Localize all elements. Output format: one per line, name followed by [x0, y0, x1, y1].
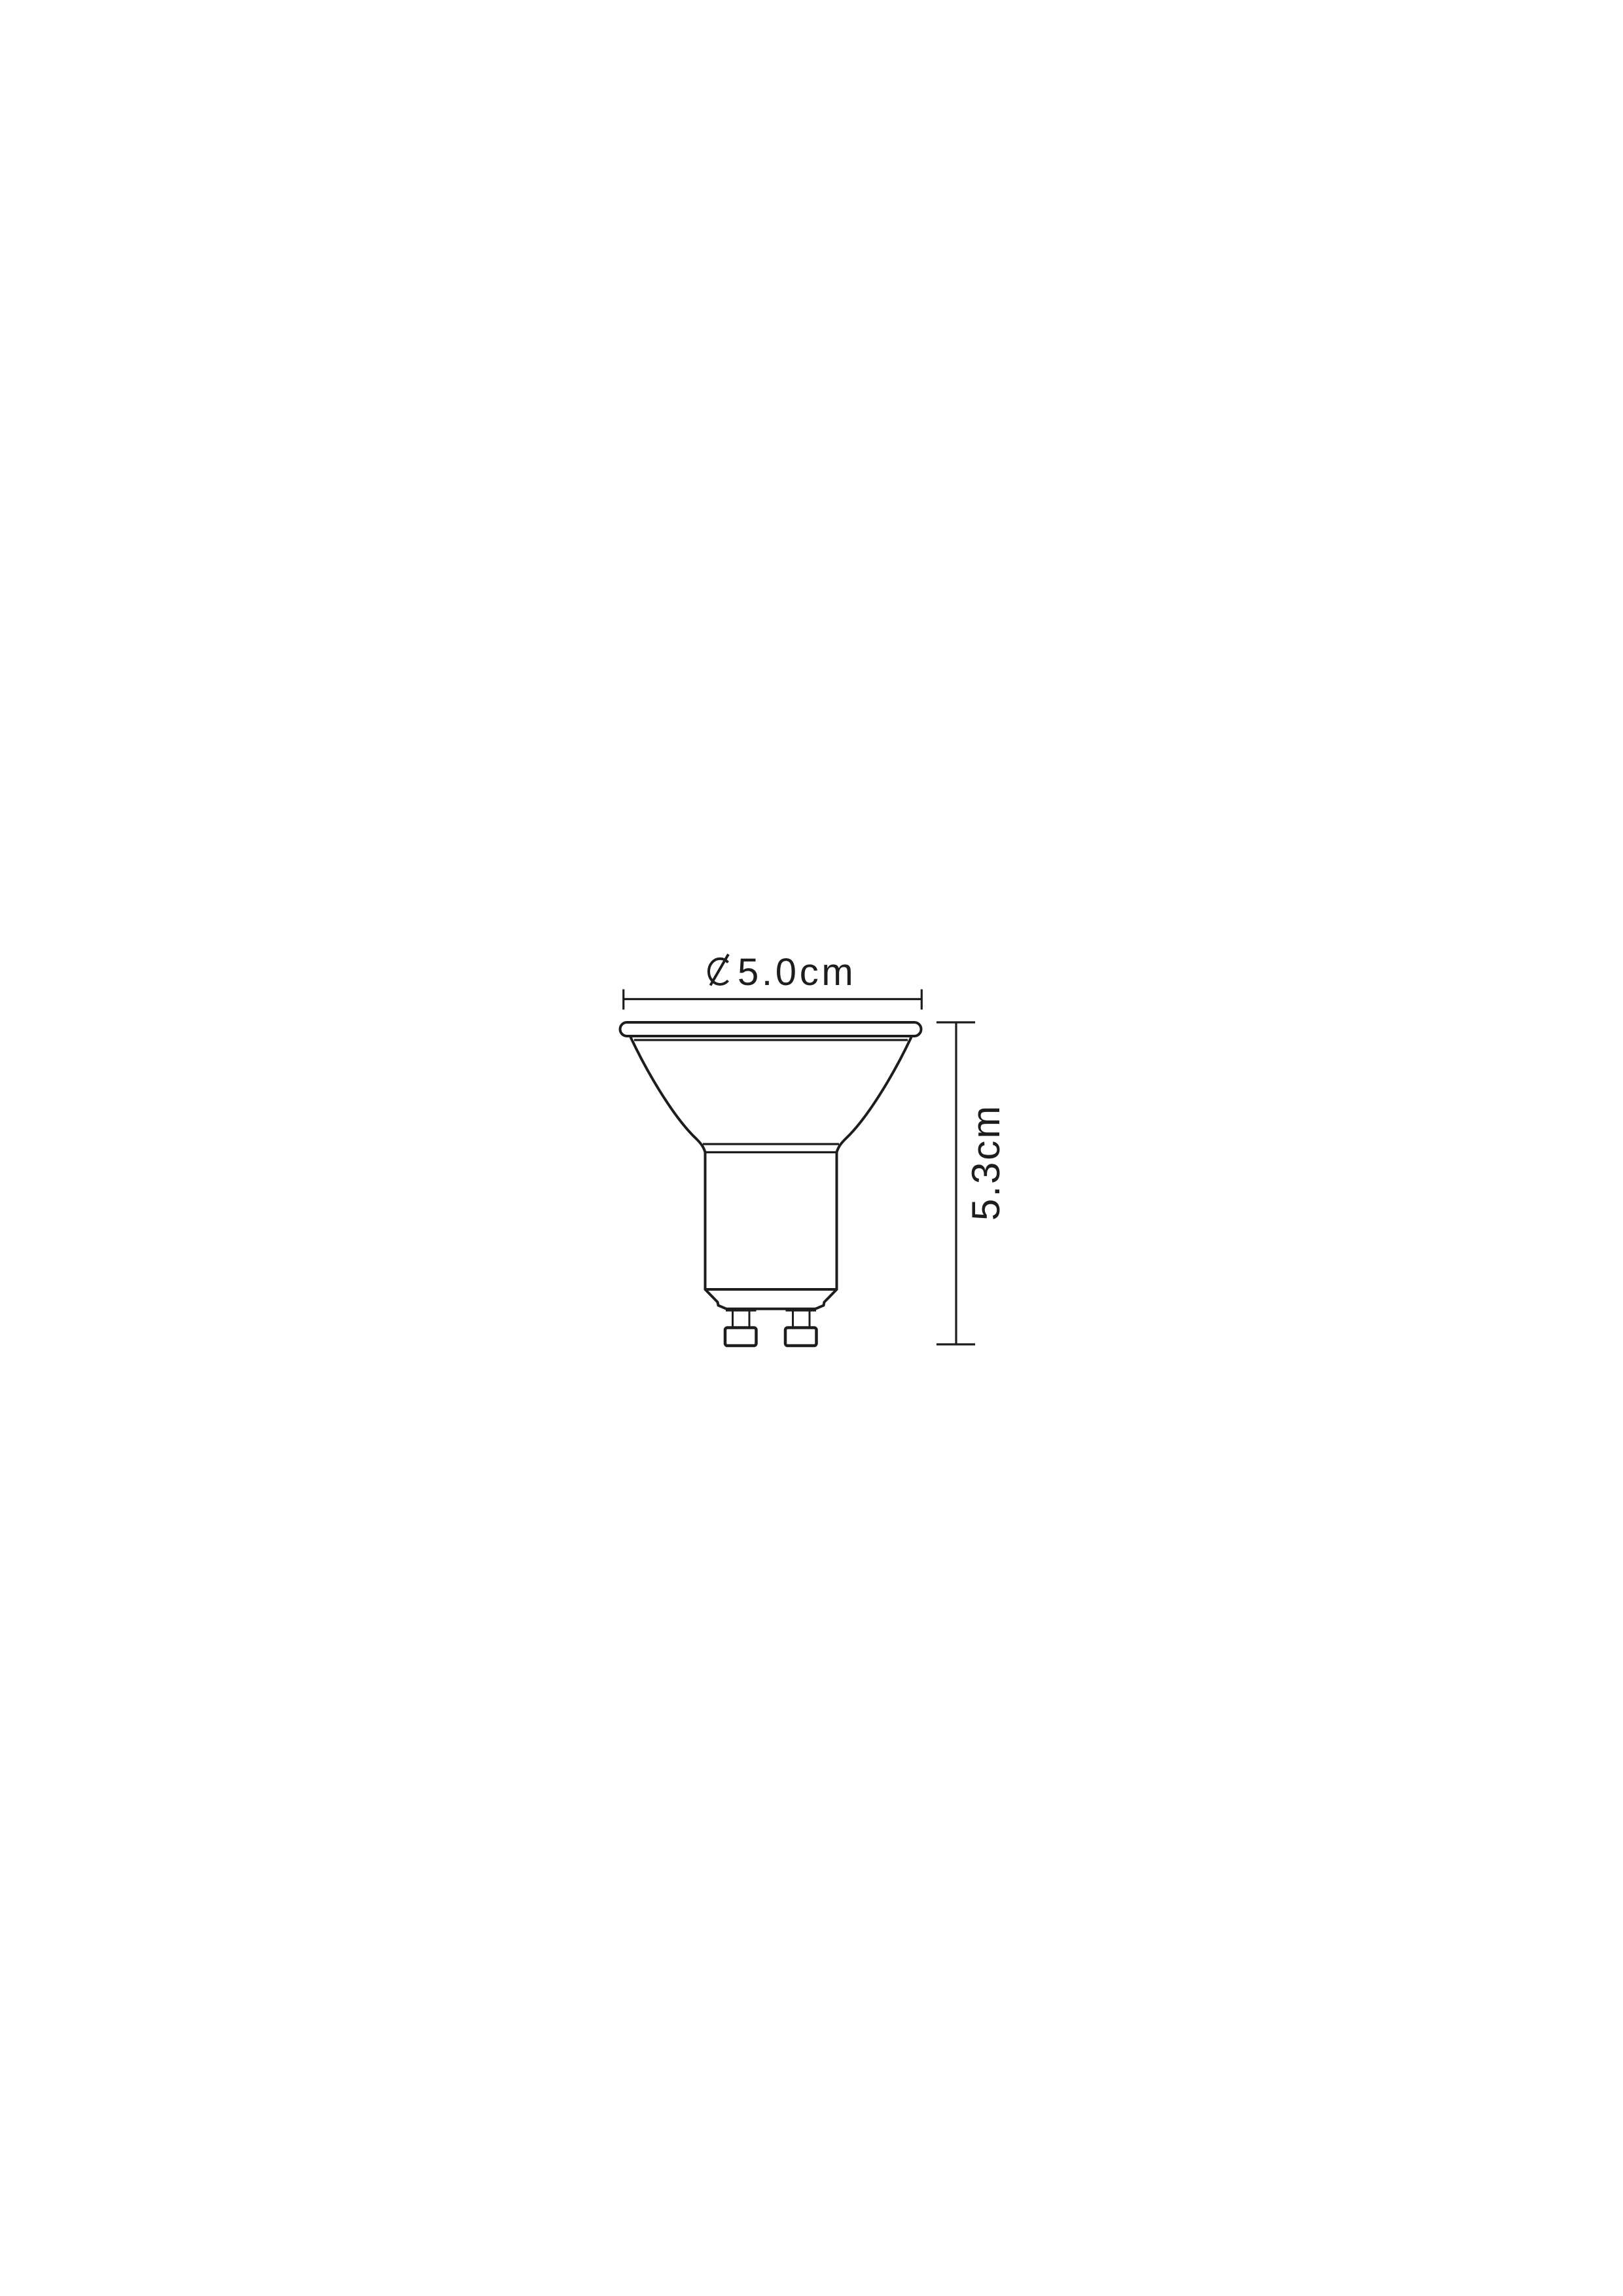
svg-text:5.3cm: 5.3cm	[964, 1104, 1008, 1221]
svg-text:5.0cm: 5.0cm	[738, 951, 856, 994]
